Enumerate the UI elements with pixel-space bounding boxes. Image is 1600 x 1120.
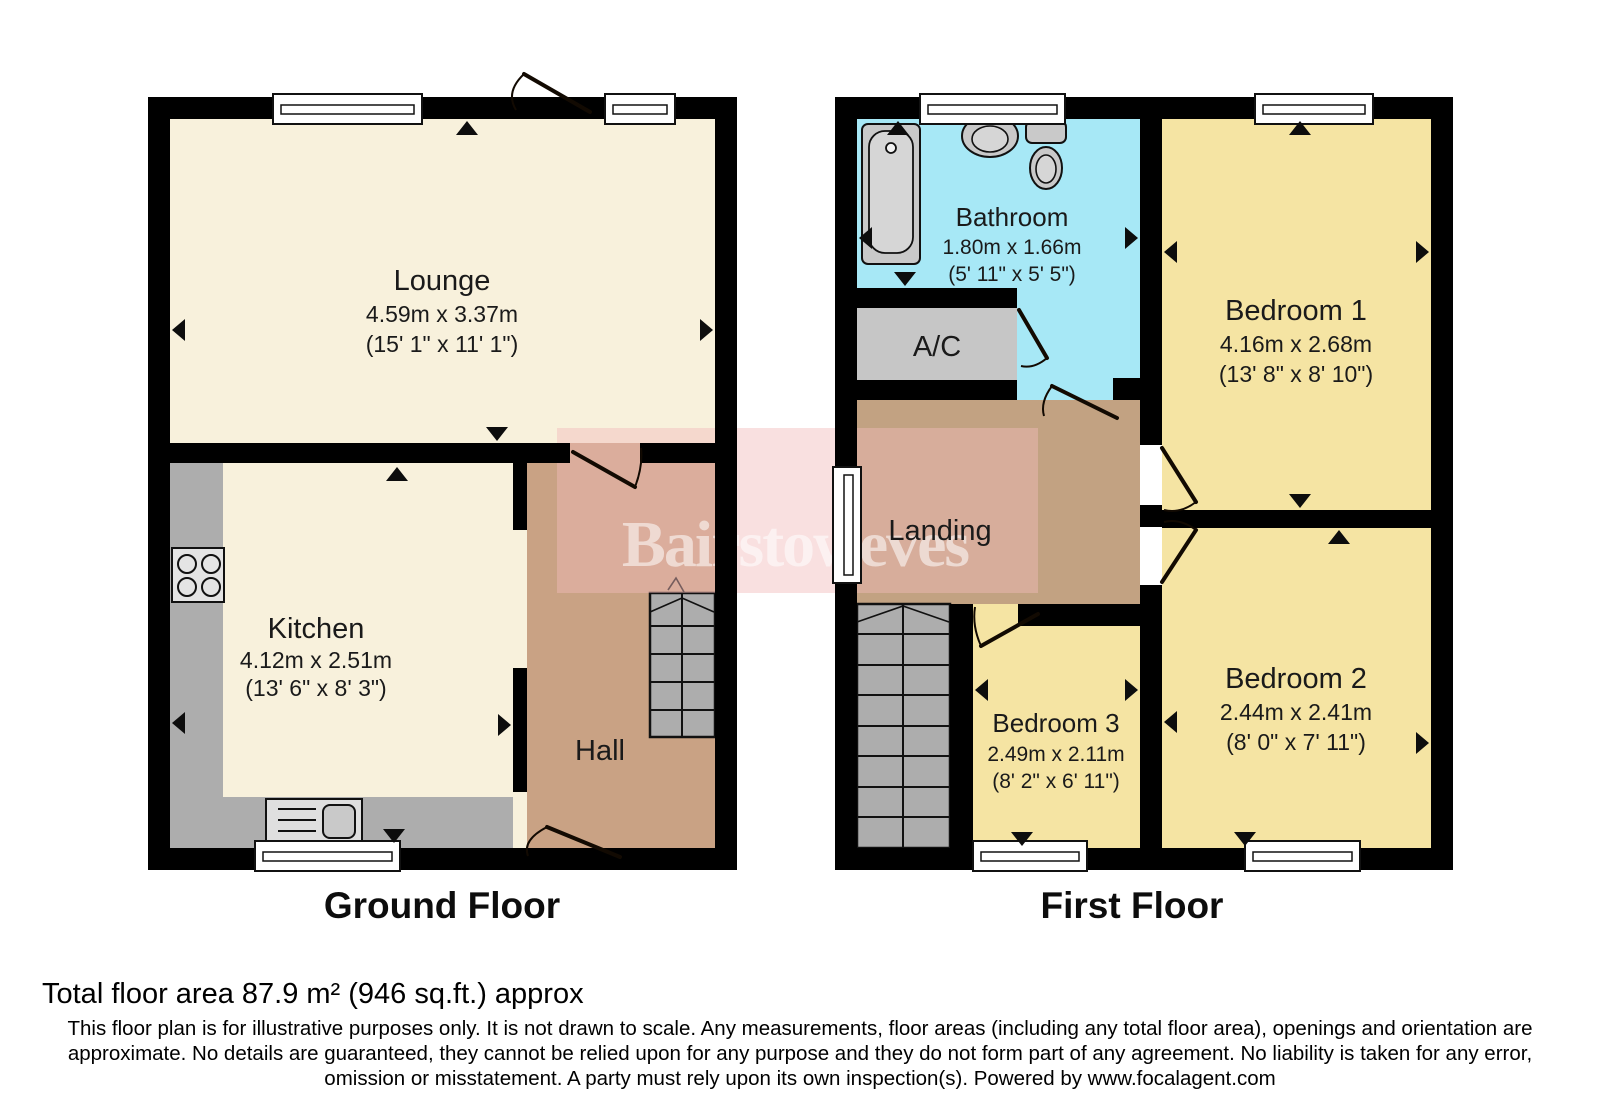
kitchen-sink-icon bbox=[266, 799, 362, 843]
bedroom3-imperial: (8' 2" x 6' 11") bbox=[992, 770, 1120, 793]
bedroom3-metric: 2.49m x 2.11m bbox=[987, 743, 1124, 766]
bedroom1-window-icon bbox=[1255, 94, 1373, 124]
landing-window-icon bbox=[833, 467, 861, 583]
kitchen-label: Kitchen bbox=[268, 613, 365, 645]
bathroom-label: Bathroom bbox=[956, 202, 1069, 232]
bedroom2-label: Bedroom 2 bbox=[1225, 663, 1367, 695]
ground-stairs bbox=[650, 578, 715, 737]
lounge-metric: 4.59m x 3.37m bbox=[366, 301, 518, 327]
bedroom2-window-icon bbox=[1245, 841, 1360, 871]
ground-floor-caption: Ground Floor bbox=[324, 885, 560, 926]
floorplan-drawing: Bairstoweves bbox=[0, 0, 1600, 1120]
bathroom-metric: 1.80m x 1.66m bbox=[943, 236, 1082, 259]
lounge-window-icon bbox=[273, 94, 422, 124]
kitchen-floor bbox=[170, 443, 527, 848]
watermark: Bairstoweves bbox=[557, 428, 1038, 593]
kitchen-window-icon bbox=[255, 841, 400, 871]
disclaimer-text: This floor plan is for illustrative purp… bbox=[40, 1016, 1560, 1091]
bathroom-imperial: (5' 11" x 5' 5") bbox=[948, 263, 1076, 286]
floorplan-page: Bairstoweves bbox=[0, 0, 1600, 1120]
bedroom3-label: Bedroom 3 bbox=[992, 708, 1119, 738]
bedroom1-imperial: (13' 8" x 8' 10") bbox=[1219, 361, 1373, 387]
bedroom2-imperial: (8' 0" x 7' 11") bbox=[1226, 729, 1366, 755]
lounge-label: Lounge bbox=[394, 265, 491, 297]
total-floor-area: Total floor area 87.9 m² (946 sq.ft.) ap… bbox=[42, 978, 584, 1011]
bathroom-window-icon bbox=[920, 94, 1065, 124]
lounge-window2-icon bbox=[605, 94, 675, 124]
first-floor-stairs bbox=[857, 604, 950, 848]
hall-label: Hall bbox=[575, 735, 625, 767]
lounge-imperial: (15' 1" x 11' 1") bbox=[366, 331, 519, 357]
first-floor-caption: First Floor bbox=[1041, 885, 1224, 926]
bedroom1-metric: 4.16m x 2.68m bbox=[1220, 331, 1372, 357]
bedroom3-window-icon bbox=[973, 841, 1087, 871]
ac-label: A/C bbox=[913, 331, 961, 363]
kitchen-imperial: (13' 6" x 8' 3") bbox=[245, 675, 386, 701]
kitchen-counter-left bbox=[170, 463, 223, 797]
kitchen-metric: 4.12m x 2.51m bbox=[240, 647, 392, 673]
bedroom1-label: Bedroom 1 bbox=[1225, 295, 1367, 327]
landing-label: Landing bbox=[888, 515, 991, 547]
hob-icon bbox=[172, 548, 224, 602]
bedroom2-metric: 2.44m x 2.41m bbox=[1220, 699, 1372, 725]
